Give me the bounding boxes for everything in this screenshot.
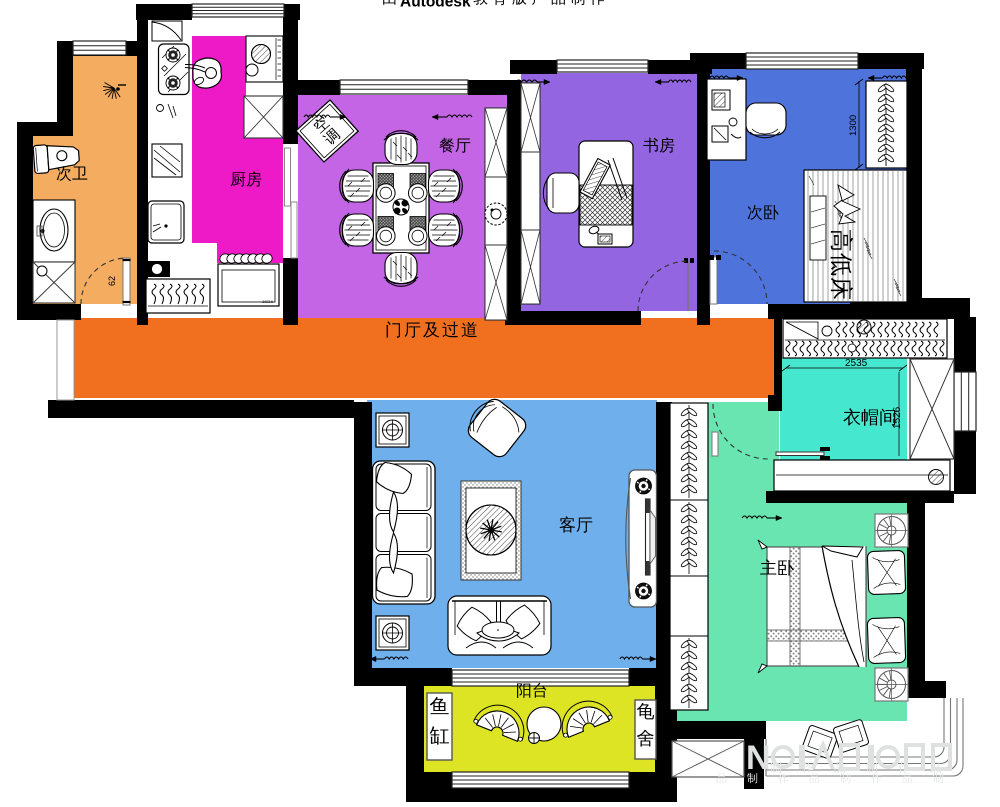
svg-text:62: 62 bbox=[107, 276, 117, 286]
svg-text:Autodesk: Autodesk bbox=[400, 0, 471, 11]
svg-text:2535: 2535 bbox=[845, 358, 868, 369]
svg-text:1300: 1300 bbox=[848, 115, 859, 136]
svg-text:1526: 1526 bbox=[892, 406, 903, 429]
svg-text:3003.6: 3003.6 bbox=[262, 300, 273, 304]
svg-text:N: N bbox=[746, 739, 771, 777]
